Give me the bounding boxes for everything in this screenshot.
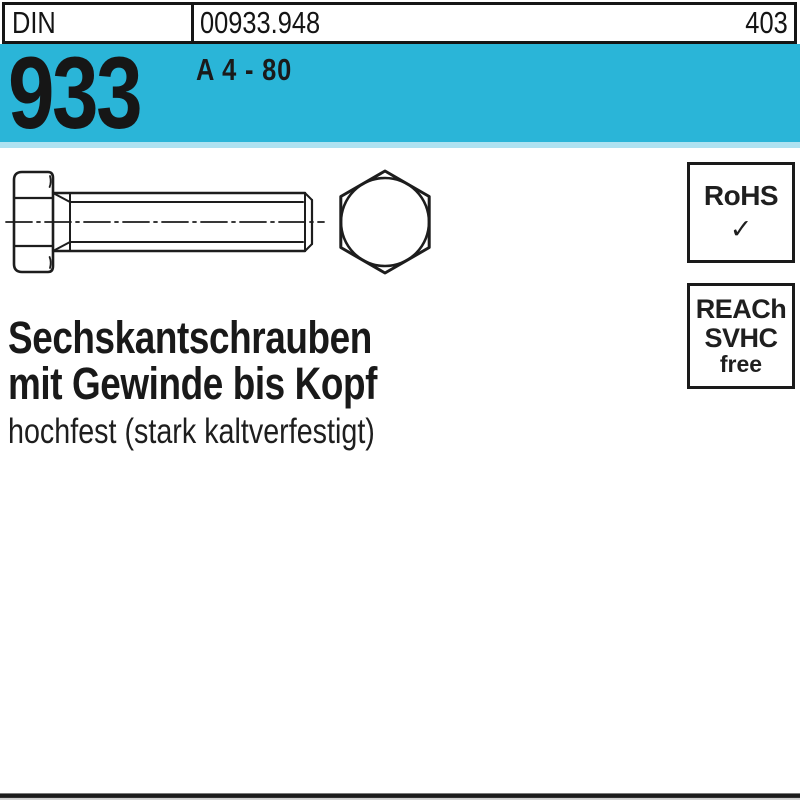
- bottom-rule: [0, 792, 800, 800]
- reach-line3: free: [720, 352, 762, 376]
- din-standard-number: 933: [8, 46, 169, 140]
- reach-line1: REACh: [696, 295, 787, 324]
- catalog-card: DIN 00933.948 403 933 A 4 - 80: [0, 0, 800, 800]
- material-grade: A 4 - 80: [196, 52, 313, 88]
- page-number: 403: [746, 5, 788, 41]
- rohs-checkmark-icon: ✓: [730, 214, 753, 245]
- reach-badge: REACh SVHC free: [687, 283, 795, 389]
- rohs-badge: RoHS ✓: [687, 162, 795, 263]
- article-box: 00933.948 403: [194, 5, 794, 41]
- article-number: 00933.948: [200, 5, 320, 41]
- banner-light-strip: [0, 142, 800, 148]
- standard-banner: 933 A 4 - 80: [0, 44, 800, 148]
- product-title-line2: mit Gewinde bis Kopf: [8, 361, 377, 407]
- reach-line2: SVHC: [704, 324, 777, 353]
- bolt-head-front-view: [341, 171, 429, 273]
- hex-bolt-drawing-icon: [0, 155, 450, 290]
- product-title-line1: Sechskantschrauben: [8, 315, 372, 361]
- product-title: Sechskantschrauben mit Gewinde bis Kopf: [8, 315, 458, 407]
- rohs-label: RoHS: [704, 180, 778, 212]
- product-subtitle: hochfest (stark kaltverfestigt): [8, 412, 455, 452]
